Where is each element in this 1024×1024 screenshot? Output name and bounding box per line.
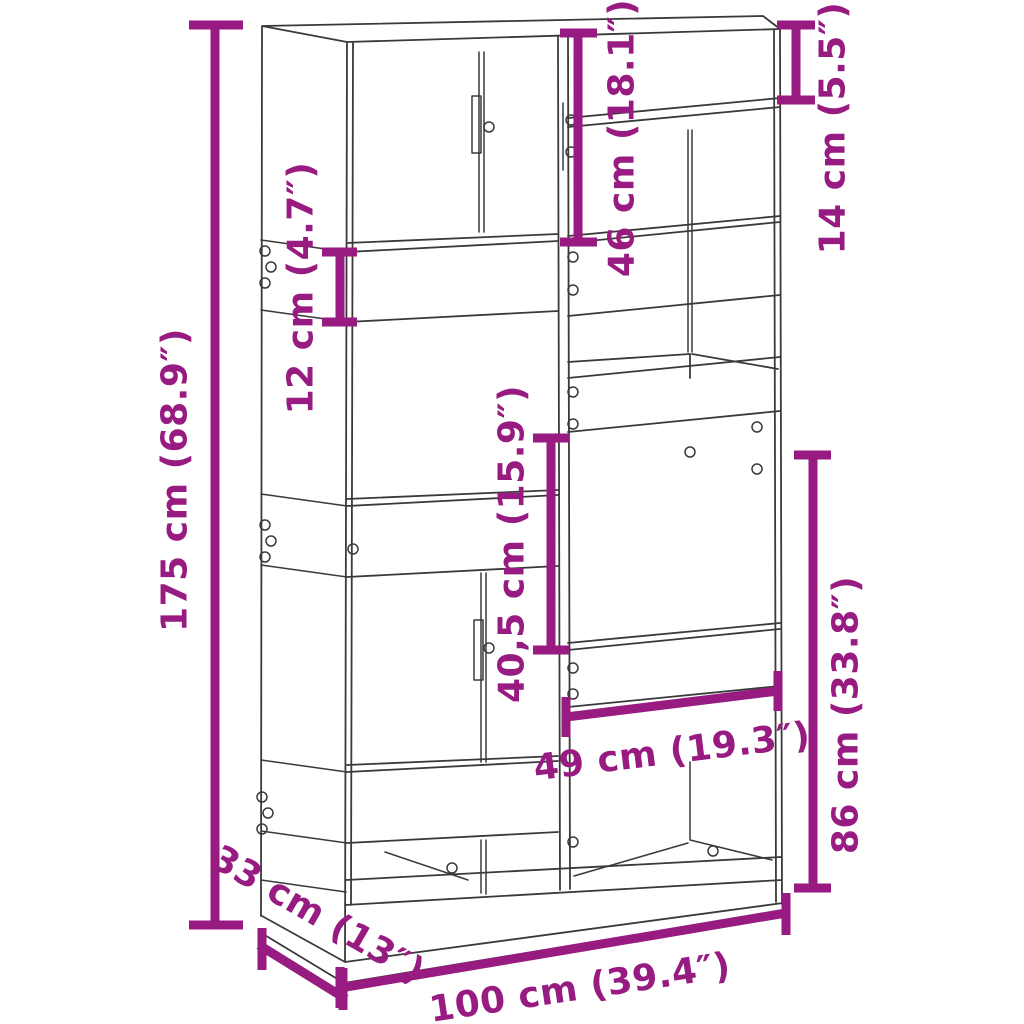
dim-upper-right-section-line: [560, 33, 597, 242]
dim-total-height: 175 cm (68.9″): [155, 25, 244, 925]
dim-total-width-label: 100 cm (39.4″): [427, 945, 734, 1024]
dim-top-right-gap-line: [777, 25, 815, 100]
dim-middle-right-section: 40,5 cm (15.9″): [492, 385, 570, 703]
dim-middle-right-section-line: [533, 438, 569, 650]
dim-inner-width-label: 49 cm (19.3″): [531, 715, 812, 790]
dim-lower-right-section-label: 86 cm (33.8″): [826, 576, 867, 854]
bookcase-dimension-drawing: 175 cm (68.9″) 12 cm (4.7″) 46 cm (18.1″…: [0, 0, 1024, 1024]
dim-middle-right-section-label: 40,5 cm (15.9″): [492, 385, 533, 703]
dim-shelf-spacing-label: 12 cm (4.7″): [281, 162, 322, 415]
dim-total-height-line: [189, 25, 243, 925]
dim-lower-right-section: 86 cm (33.8″): [794, 455, 867, 888]
dimension-diagram: 175 cm (68.9″) 12 cm (4.7″) 46 cm (18.1″…: [0, 0, 1024, 1024]
dim-top-right-gap: 14 cm (5.5″): [777, 2, 854, 255]
shelf-bands-right: [568, 98, 780, 707]
dim-depth-label: 33 cm (13″): [204, 838, 431, 993]
dim-top-right-gap-label: 14 cm (5.5″): [813, 2, 854, 255]
dim-upper-right-section-label: 46 cm (18.1″): [602, 0, 643, 277]
dim-total-height-label: 175 cm (68.9″): [155, 328, 196, 632]
